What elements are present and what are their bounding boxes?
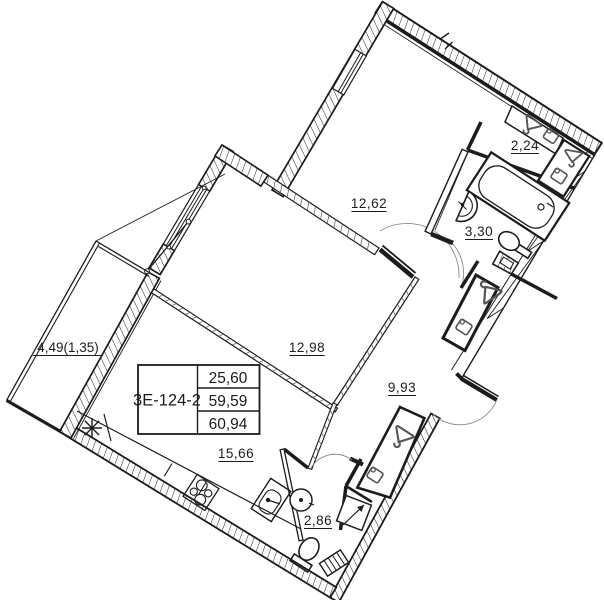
svg-text:3,30: 3,30: [465, 224, 493, 239]
svg-text:4,49(1,35): 4,49(1,35): [37, 340, 99, 355]
svg-text:12,62: 12,62: [351, 196, 387, 211]
svg-text:2,86: 2,86: [304, 513, 332, 528]
svg-text:12,98: 12,98: [289, 340, 325, 355]
svg-text:60,94: 60,94: [209, 416, 248, 433]
svg-text:9,93: 9,93: [388, 380, 416, 395]
svg-text:25,60: 25,60: [209, 370, 248, 387]
svg-text:3Е-124-2: 3Е-124-2: [133, 392, 201, 410]
svg-text:15,66: 15,66: [218, 446, 254, 461]
svg-text:59,59: 59,59: [209, 393, 248, 410]
